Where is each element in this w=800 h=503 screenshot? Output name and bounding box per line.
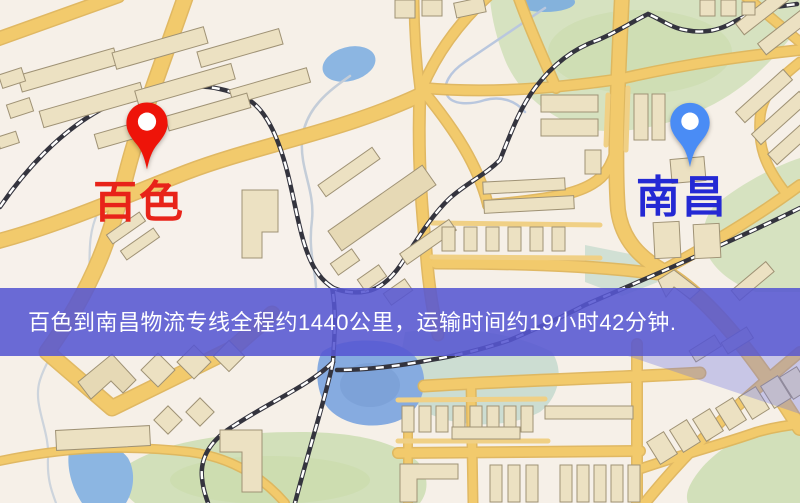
map-background	[0, 0, 800, 503]
pin-hole	[138, 113, 156, 131]
origin-pin-icon[interactable]	[124, 98, 170, 174]
route-info-text: 百色到南昌物流专线全程约1440公里，运输时间约19小时42分钟.	[28, 305, 677, 337]
map-screenshot: 百色 南昌 百色到南昌物流专线全程约1440公里，运输时间约19小时42分钟.	[0, 0, 800, 503]
destination-label: 南昌	[636, 176, 728, 220]
pin-hole	[681, 113, 698, 130]
origin-label: 百色	[93, 181, 185, 225]
route-info-banner: 百色到南昌物流专线全程约1440公里，运输时间约19小时42分钟.	[0, 288, 800, 356]
destination-pin-icon[interactable]	[668, 100, 712, 170]
